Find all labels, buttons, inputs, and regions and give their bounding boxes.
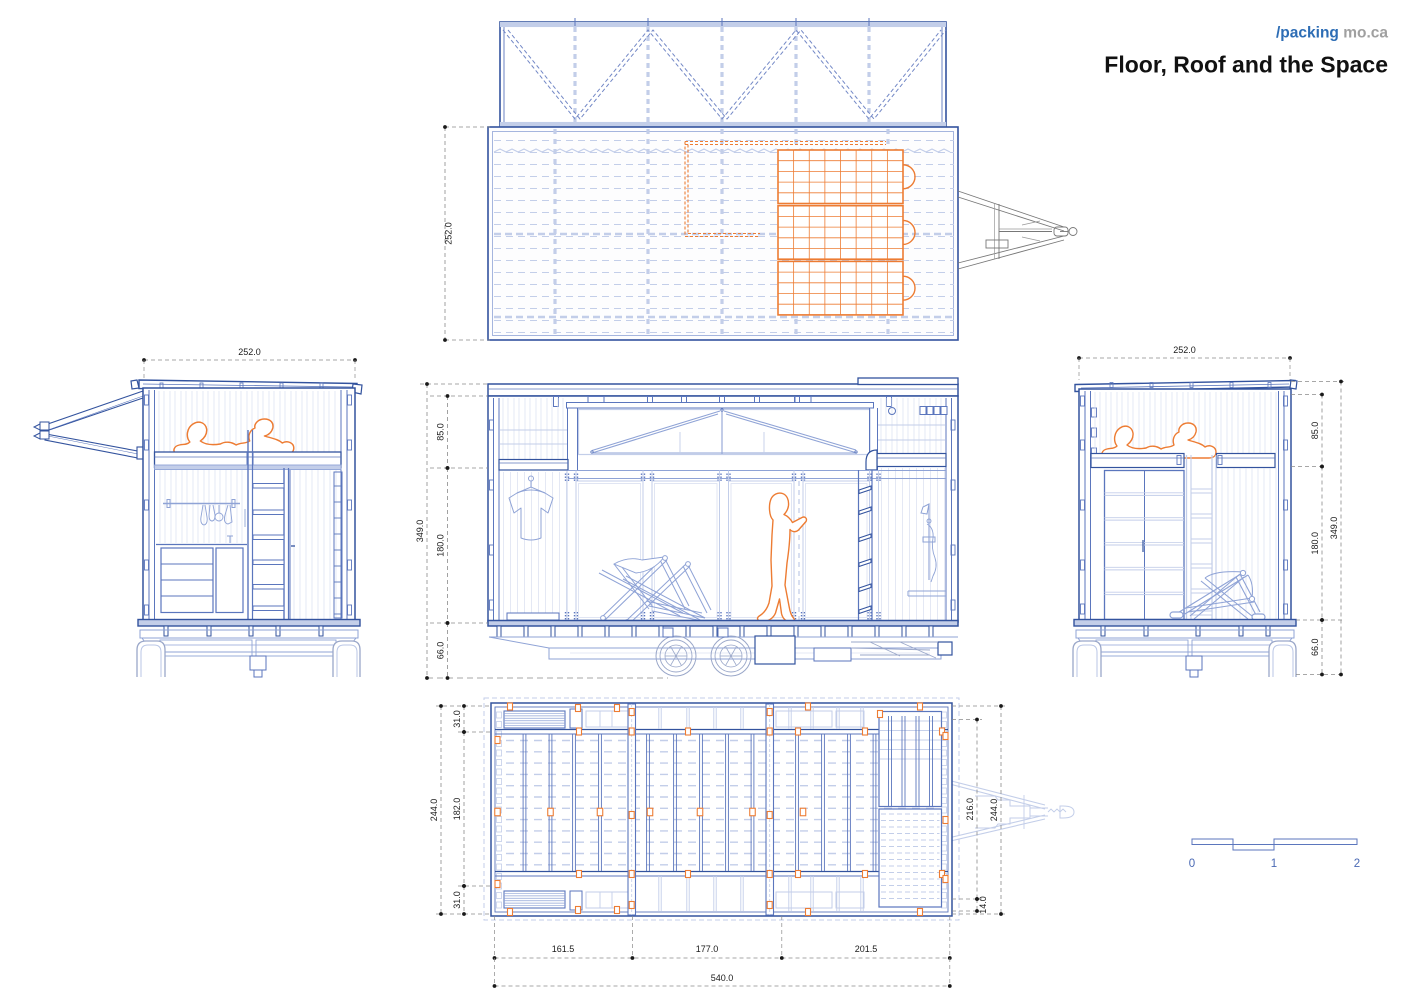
svg-text:349.0: 349.0 [1329,517,1339,540]
svg-text:14.0: 14.0 [978,896,988,914]
svg-text:1: 1 [1271,858,1277,870]
svg-text:2: 2 [1354,858,1360,870]
svg-text:216.0: 216.0 [965,798,975,821]
svg-text:182.0: 182.0 [452,798,462,821]
svg-text:161.5: 161.5 [552,944,575,954]
svg-text:540.0: 540.0 [711,973,734,983]
svg-text:0: 0 [1189,858,1195,870]
svg-text:180.0: 180.0 [436,534,446,557]
svg-text:244.0: 244.0 [429,799,439,822]
svg-text:85.0: 85.0 [1310,422,1320,440]
svg-text:252.0: 252.0 [1173,345,1196,355]
svg-text:349.0: 349.0 [415,520,425,543]
svg-text:85.0: 85.0 [436,423,446,441]
svg-text:252.0: 252.0 [238,347,261,357]
svg-text:180.0: 180.0 [1310,532,1320,555]
svg-text:66.0: 66.0 [436,642,446,660]
svg-text:Floor, Roof and the Space: Floor, Roof and the Space [1104,52,1388,78]
svg-text:31.0: 31.0 [452,891,462,909]
svg-text:252.0: 252.0 [444,222,454,245]
svg-text:244.0: 244.0 [989,799,999,822]
svg-text:201.5: 201.5 [855,944,878,954]
svg-text:/packing mo.ca: /packing mo.ca [1276,25,1388,42]
svg-text:66.0: 66.0 [1310,638,1320,656]
svg-text:177.0: 177.0 [696,944,719,954]
svg-text:31.0: 31.0 [452,710,462,728]
